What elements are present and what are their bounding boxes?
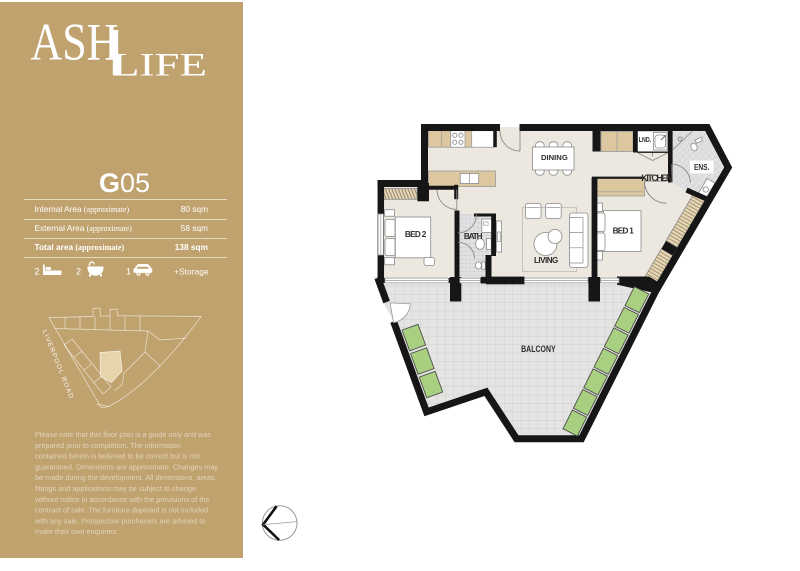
svg-text:LIVING: LIVING: [534, 256, 558, 265]
svg-text:58 sqm: 58 sqm: [181, 223, 208, 233]
svg-text:80 sqm: 80 sqm: [181, 204, 208, 214]
svg-text:BALCONY: BALCONY: [521, 344, 556, 354]
svg-text:BATH: BATH: [464, 232, 483, 241]
svg-text:2: 2: [76, 267, 81, 277]
svg-text:LND.: LND.: [639, 135, 652, 144]
svg-text:contract of sale. The furnitur: contract of sale. The furniture depicted…: [35, 506, 208, 515]
svg-text:fittings and applications may: fittings and applications may be subject…: [35, 484, 196, 493]
svg-text:BED 2: BED 2: [405, 230, 427, 239]
svg-text:+Storage: +Storage: [174, 267, 209, 277]
svg-text:05: 05: [120, 168, 150, 198]
svg-text:KITCHEN: KITCHEN: [641, 173, 672, 183]
svg-text:1: 1: [126, 267, 131, 277]
svg-text:Total area (approximate): Total area (approximate): [35, 242, 125, 252]
svg-text:ASH: ASH: [31, 14, 119, 72]
svg-text:138 sqm: 138 sqm: [175, 242, 208, 252]
svg-text:contained herein is believed t: contained herein is believed to be corre…: [35, 452, 200, 461]
svg-text:make their own enquiries.: make their own enquiries.: [35, 527, 118, 536]
svg-text:be made during the development: be made during the development. All dime…: [35, 473, 217, 482]
svg-text:DINING: DINING: [541, 153, 568, 162]
svg-text:ENS.: ENS.: [694, 163, 710, 172]
svg-text:with any sale. Prospective pur: with any sale. Prospective purchasers ar…: [34, 516, 205, 525]
svg-text:without notice in accordance w: without notice in accordance with the pr…: [34, 495, 209, 504]
svg-text:Internal Area (approximate): Internal Area (approximate): [35, 204, 130, 214]
svg-text:Please note that this floor pl: Please note that this floor plan is a gu…: [35, 430, 211, 439]
svg-text:guaranteed. Dimensions are app: guaranteed. Dimensions are approximate. …: [35, 462, 218, 471]
svg-text:BED 1: BED 1: [613, 227, 635, 236]
svg-text:G: G: [99, 168, 120, 198]
svg-text:External Area (approximate): External Area (approximate): [35, 223, 133, 233]
svg-text:LIFE: LIFE: [112, 48, 207, 84]
svg-text:prepared prior to completion.: prepared prior to completion. The inform…: [35, 441, 181, 450]
svg-text:2: 2: [35, 267, 40, 277]
